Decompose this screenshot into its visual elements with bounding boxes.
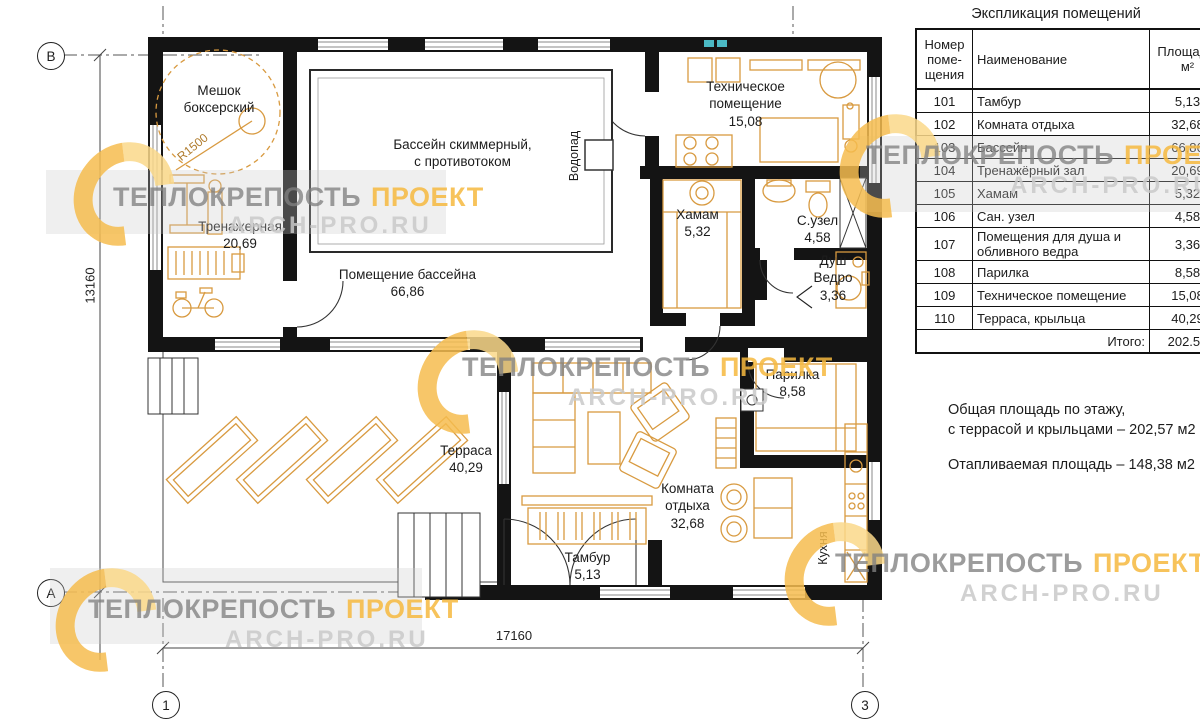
note-total-area-line2: с террасой и крыльцами – 202,57 м2 (948, 420, 1200, 440)
waterfall-label: Водопад (566, 120, 582, 192)
axis-marker-1: 1 (152, 691, 180, 719)
pool-label: Бассейн скиммерный,с противотоком (350, 136, 575, 171)
table-row: 110Терраса, крыльца40,29 (916, 307, 1200, 330)
room-label-sauna: Парилка8,58 (740, 366, 845, 401)
floor-plan-sheet: Мешокбоксерский R1500 Тренажерная20,69 Б… (0, 0, 1200, 726)
area-notes: Общая площадь по этажу, с террасой и кры… (948, 400, 1200, 475)
table-row: 102Комната отдыха32,68 (916, 113, 1200, 136)
table-row: 107Помещения для душа и обливного ведра3… (916, 228, 1200, 261)
stairs (148, 358, 480, 597)
axis-marker-B: В (37, 42, 65, 70)
room-schedule-table: Номер поме- щения Наименование Площадь, … (915, 28, 1200, 354)
dim-vertical: 13160 (83, 255, 98, 317)
room-label-terrace: Терраса40,29 (422, 442, 510, 477)
room-label-gym: Тренажерная20,69 (180, 218, 300, 253)
table-header-row: Номер поме- щения Наименование Площадь, … (916, 29, 1200, 89)
room-label-shower: Душ Ведро3,36 (804, 252, 862, 304)
boxing-bag-label: Мешокбоксерский (160, 82, 278, 117)
table-row: 109Техническое помещение15,08 (916, 284, 1200, 307)
waterfall-box (585, 140, 613, 170)
room-label-lounge: Комната отдыха32,68 (640, 480, 735, 532)
kitchen-label: Кухня (815, 512, 831, 584)
dim-horizontal: 17160 (483, 628, 545, 643)
table-row: 105Хамам5,32 (916, 182, 1200, 205)
room-label-wc: С.узел4,58 (780, 212, 855, 247)
room-label-hamam: Хамам5,32 (655, 206, 740, 241)
schedule-title: Экспликация помещений (915, 6, 1197, 22)
room-label-tech: Техническое помещение15,08 (683, 78, 808, 130)
table-row: 108Парилка8,58 (916, 261, 1200, 284)
room-label-pool-hall: Помещение бассейна66,86 (315, 266, 500, 301)
table-row: 106Сан. узел4,58 (916, 205, 1200, 228)
table-row: 101Тамбур5,13 (916, 89, 1200, 113)
room-label-vestibule: Тамбур5,13 (535, 549, 640, 584)
note-heated-area: Отапливаемая площадь – 148,38 м2 (948, 455, 1200, 475)
table-total-row: Итого: 202.57 (916, 330, 1200, 354)
axis-marker-A: А (37, 579, 65, 607)
table-row: 104Тренажёрный зал20,69 (916, 159, 1200, 182)
table-row: 103Бассейн66,86 (916, 136, 1200, 159)
axis-marker-3: 3 (851, 691, 879, 719)
note-total-area-line1: Общая площадь по этажу, (948, 400, 1200, 420)
